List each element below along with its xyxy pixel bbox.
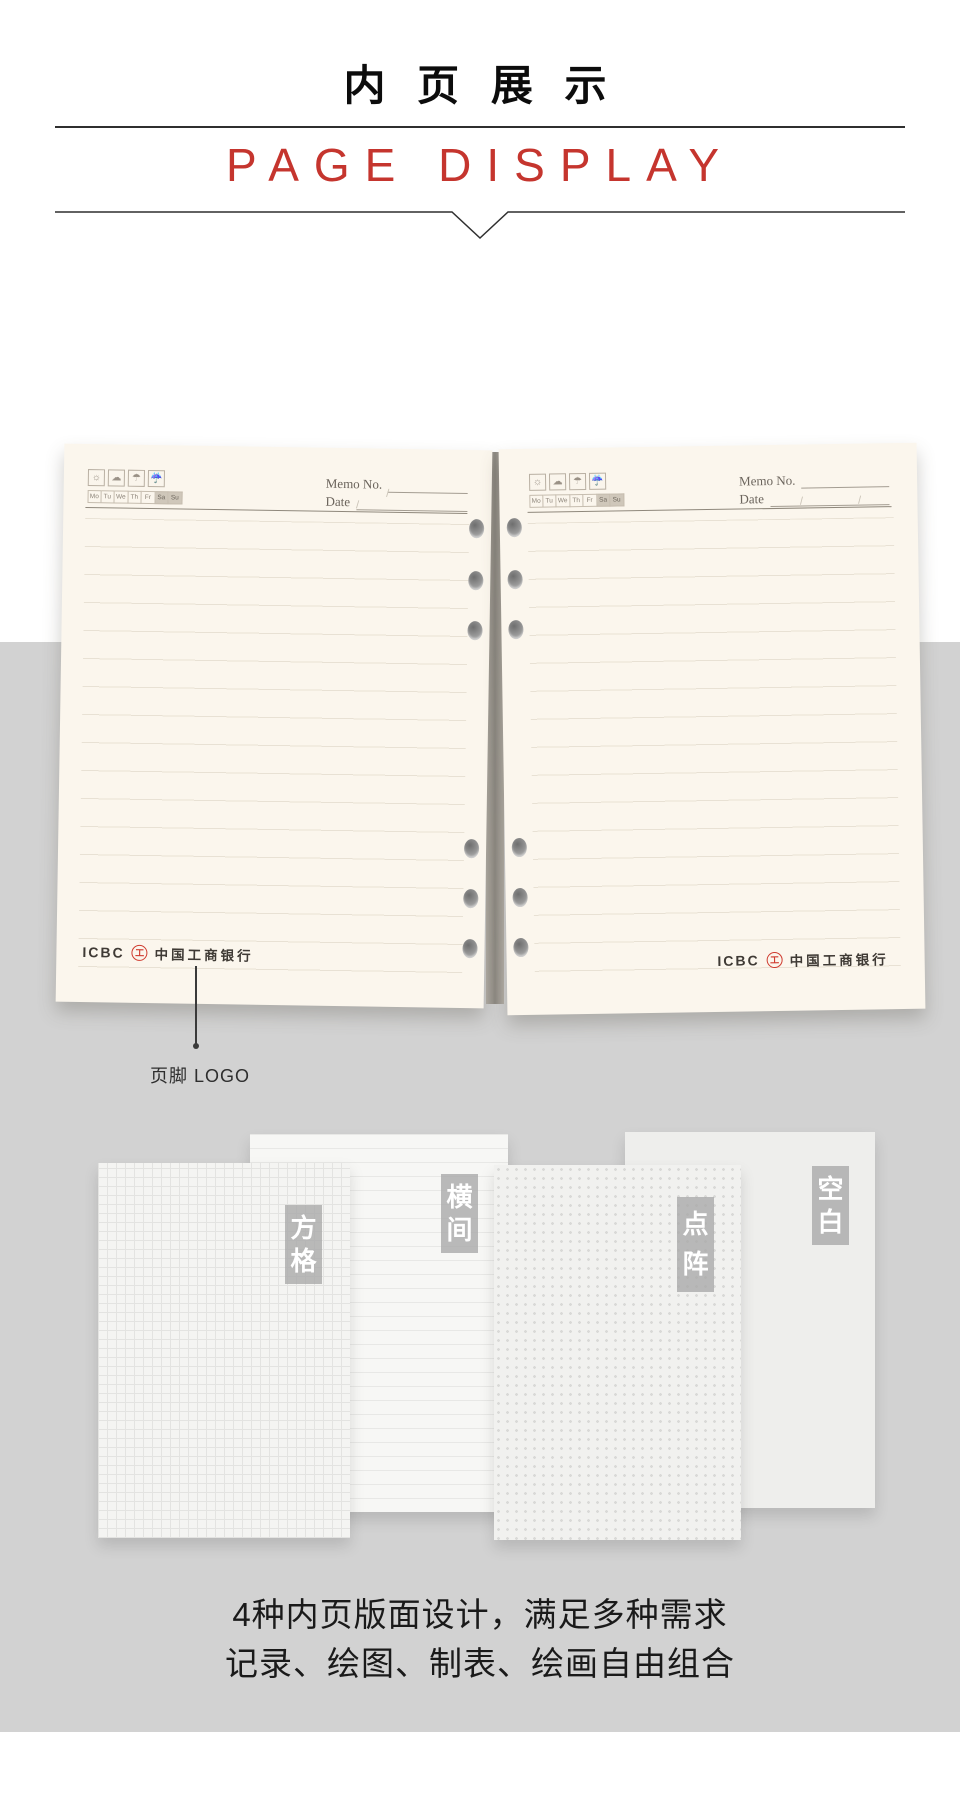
cloud-icon: ☁ <box>549 473 566 490</box>
weekday-cell: We <box>114 490 128 503</box>
memo-header: Memo No. Date / / <box>325 474 468 512</box>
sheet-label-lines: 横间 <box>441 1174 478 1253</box>
caption-line-1: 4种内页版面设计，满足多种需求 <box>0 1588 960 1636</box>
page-title: 内 页 展 示 <box>0 52 960 113</box>
annotation-pointer-line <box>195 966 197 1046</box>
weekday-cell: We <box>556 494 570 507</box>
weather-icon-row: ☼ ☁ ☂ ☔ <box>88 469 165 487</box>
umbrella-icon: ☂ <box>128 470 145 487</box>
date-line: / / <box>356 496 468 512</box>
divider-line <box>55 126 905 128</box>
date-label: Date <box>739 491 764 507</box>
sample-sheet-grid: 方格 <box>98 1163 350 1538</box>
icbc-logo-icon: 工 <box>132 945 148 961</box>
binder-hole <box>508 620 523 639</box>
binder-hole <box>468 571 483 590</box>
date-line: / / <box>770 491 890 507</box>
icbc-wordmark: ICBC <box>717 952 759 969</box>
memo-header: Memo No. Date / / <box>739 469 890 507</box>
footer-logo-annotation: 页脚 LOGO <box>95 1062 305 1088</box>
bank-name: 中国工商银行 <box>789 948 888 970</box>
sample-sheet-dots: 点阵 <box>494 1165 741 1540</box>
binder-hole <box>507 518 522 537</box>
icbc-wordmark: ICBC <box>82 944 124 961</box>
bank-name: 中国工商银行 <box>154 943 253 965</box>
caption-line-2: 记录、绘图、制表、绘画自由组合 <box>0 1637 960 1685</box>
weekday-cell: Th <box>128 491 142 504</box>
weekday-row: Mo Tu We Th Fr Sa Su <box>529 493 624 507</box>
sheet-label-blank: 空白 <box>812 1166 849 1245</box>
umbrella-icon: ☂ <box>569 473 586 490</box>
divider-notch-line <box>0 200 960 244</box>
sheet-label-grid: 方格 <box>285 1205 322 1284</box>
sun-icon: ☼ <box>88 469 105 486</box>
notebook-page-left: ☼ ☁ ☂ ☔ Mo Tu We Th Fr Sa Su Memo No. Da… <box>56 444 493 1009</box>
weekday-cell-weekend: Sa <box>155 491 169 504</box>
binder-hole <box>464 839 479 858</box>
page-footer-logo: ICBC 工 中国工商银行 <box>717 948 889 971</box>
sun-icon: ☼ <box>529 474 546 491</box>
binder-hole <box>512 888 527 907</box>
icbc-logo-icon: 工 <box>767 952 783 968</box>
cloud-icon: ☁ <box>108 469 125 486</box>
binder-hole <box>462 939 477 958</box>
weather-icon-row: ☼ ☁ ☂ ☔ <box>529 473 606 491</box>
memo-no-label: Memo No. <box>739 473 796 490</box>
ruled-lines <box>528 517 901 973</box>
binder-hole <box>463 889 478 908</box>
weekday-cell: Th <box>570 494 584 507</box>
binder-hole <box>512 838 527 857</box>
weekday-row: Mo Tu We Th Fr Sa Su <box>87 490 182 504</box>
header-rule-line <box>528 506 892 513</box>
weekday-cell: Fr <box>141 491 155 504</box>
weekday-cell-weekend: Su <box>610 493 624 506</box>
date-label: Date <box>325 494 350 510</box>
memo-no-line <box>801 473 889 488</box>
binder-hole <box>507 570 522 589</box>
rain-umbrella-icon: ☔ <box>148 470 165 487</box>
page-subtitle: PAGE DISPLAY <box>0 138 960 192</box>
weekday-cell: Mo <box>529 495 543 508</box>
sheet-label-dots: 点阵 <box>677 1197 714 1292</box>
page-footer-logo: ICBC 工 中国工商银行 <box>82 942 254 965</box>
ruled-lines <box>78 518 469 974</box>
notebook-page-right: ☼ ☁ ☂ ☔ Mo Tu We Th Fr Sa Su Memo No. Da… <box>499 443 926 1015</box>
binder-hole <box>513 938 528 957</box>
weekday-cell: Fr <box>583 494 597 507</box>
weekday-cell-weekend: Su <box>168 491 182 504</box>
binder-hole <box>469 519 484 538</box>
weekday-cell: Mo <box>87 490 101 503</box>
annotation-pointer-dot <box>193 1043 199 1049</box>
weekday-cell: Tu <box>101 490 115 503</box>
binder-hole <box>467 621 482 640</box>
weekday-cell: Tu <box>543 494 557 507</box>
weekday-cell-weekend: Sa <box>597 494 611 507</box>
date-separators: / / <box>356 487 468 513</box>
rain-umbrella-icon: ☔ <box>589 473 606 490</box>
